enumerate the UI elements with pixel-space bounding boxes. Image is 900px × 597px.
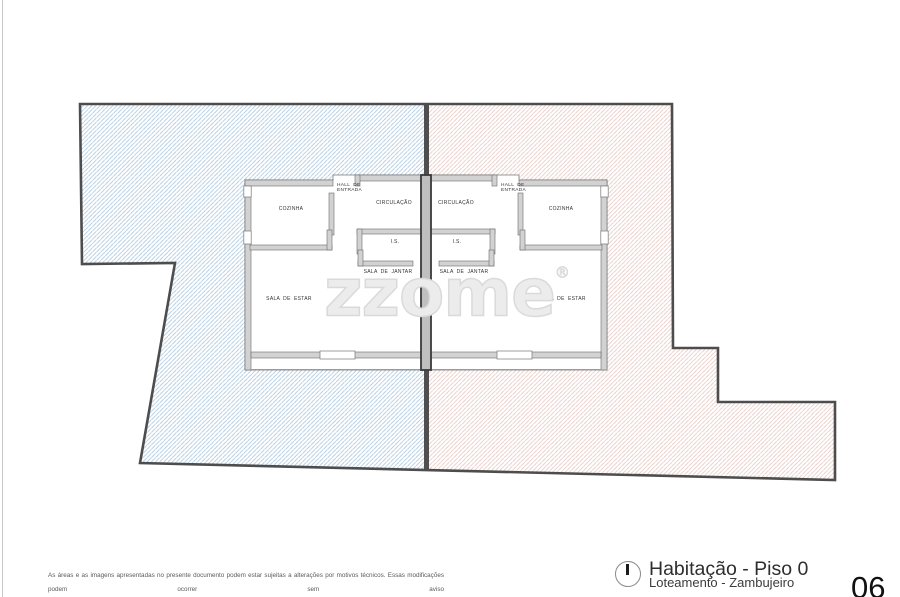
room-label-cozinha-left: COZINHA (279, 207, 304, 213)
disclaimer-line-1: As áreas e as imagens apresentadas no pr… (48, 569, 444, 596)
sheet-number: 06 (851, 570, 885, 597)
party-wall (421, 175, 431, 370)
room-label-sala-de-jantar-left: SALA DE JANTAR (364, 270, 413, 276)
north-indicator-icon (615, 561, 641, 587)
room-label-hall-left: HALL DE ENTRADA (337, 183, 362, 194)
room-label-is-right: I.S. (453, 240, 462, 246)
drawing-sheet: COZINHA HALL DE ENTRADA CIRCULAÇÃO I.S. … (0, 0, 900, 597)
room-label-circulacao-left: CIRCULAÇÃO (376, 201, 412, 207)
room-label-sala-de-estar-left: SALA DE ESTAR (266, 297, 312, 303)
floor-plan-drawing (0, 0, 900, 597)
room-label-hall-right: HALL DE ENTRADA (501, 183, 526, 194)
room-label-sala-de-estar-right: SALA DE ESTAR (540, 297, 586, 303)
sheet-subtitle: Loteamento - Zambujeiro (649, 575, 794, 590)
room-label-is-left: I.S. (391, 240, 400, 246)
room-label-circulacao-right: CIRCULAÇÃO (438, 201, 474, 207)
north-indicator-needle (626, 564, 629, 575)
left-house-patio-door (320, 351, 355, 359)
right-house-patio-door (497, 351, 532, 359)
disclaimer: As áreas e as imagens apresentadas no pr… (48, 569, 444, 597)
room-label-sala-de-jantar-right: SALA DE JANTAR (440, 270, 489, 276)
room-label-cozinha-right: COZINHA (549, 207, 574, 213)
